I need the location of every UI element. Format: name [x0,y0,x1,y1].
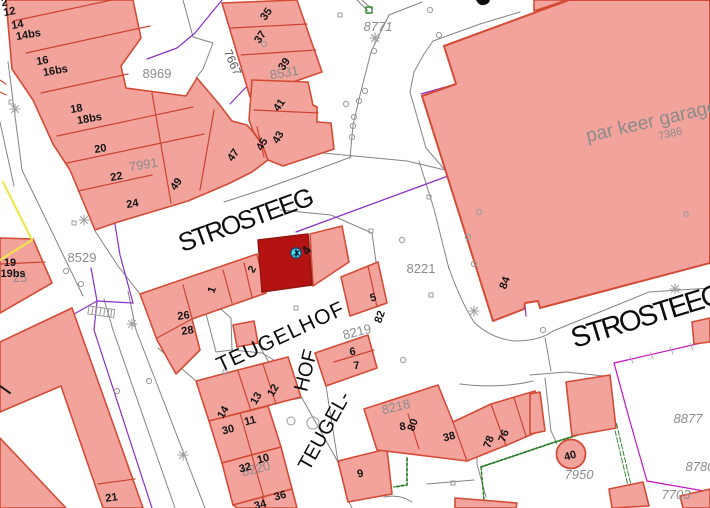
svg-text:22: 22 [109,170,123,184]
svg-text:8969: 8969 [143,66,172,81]
svg-text:21: 21 [105,491,119,505]
svg-text:7703: 7703 [662,487,692,502]
svg-text:19bs: 19bs [0,268,25,280]
svg-text:20: 20 [93,142,107,156]
svg-text:7950: 7950 [565,467,595,482]
svg-text:8221: 8221 [407,261,436,276]
svg-text:26: 26 [177,309,191,323]
svg-text:8529: 8529 [68,250,97,265]
svg-text:8780: 8780 [686,459,710,474]
svg-text:28: 28 [181,324,195,338]
svg-text:8771: 8771 [364,19,393,34]
svg-text:8877: 8877 [674,411,704,426]
